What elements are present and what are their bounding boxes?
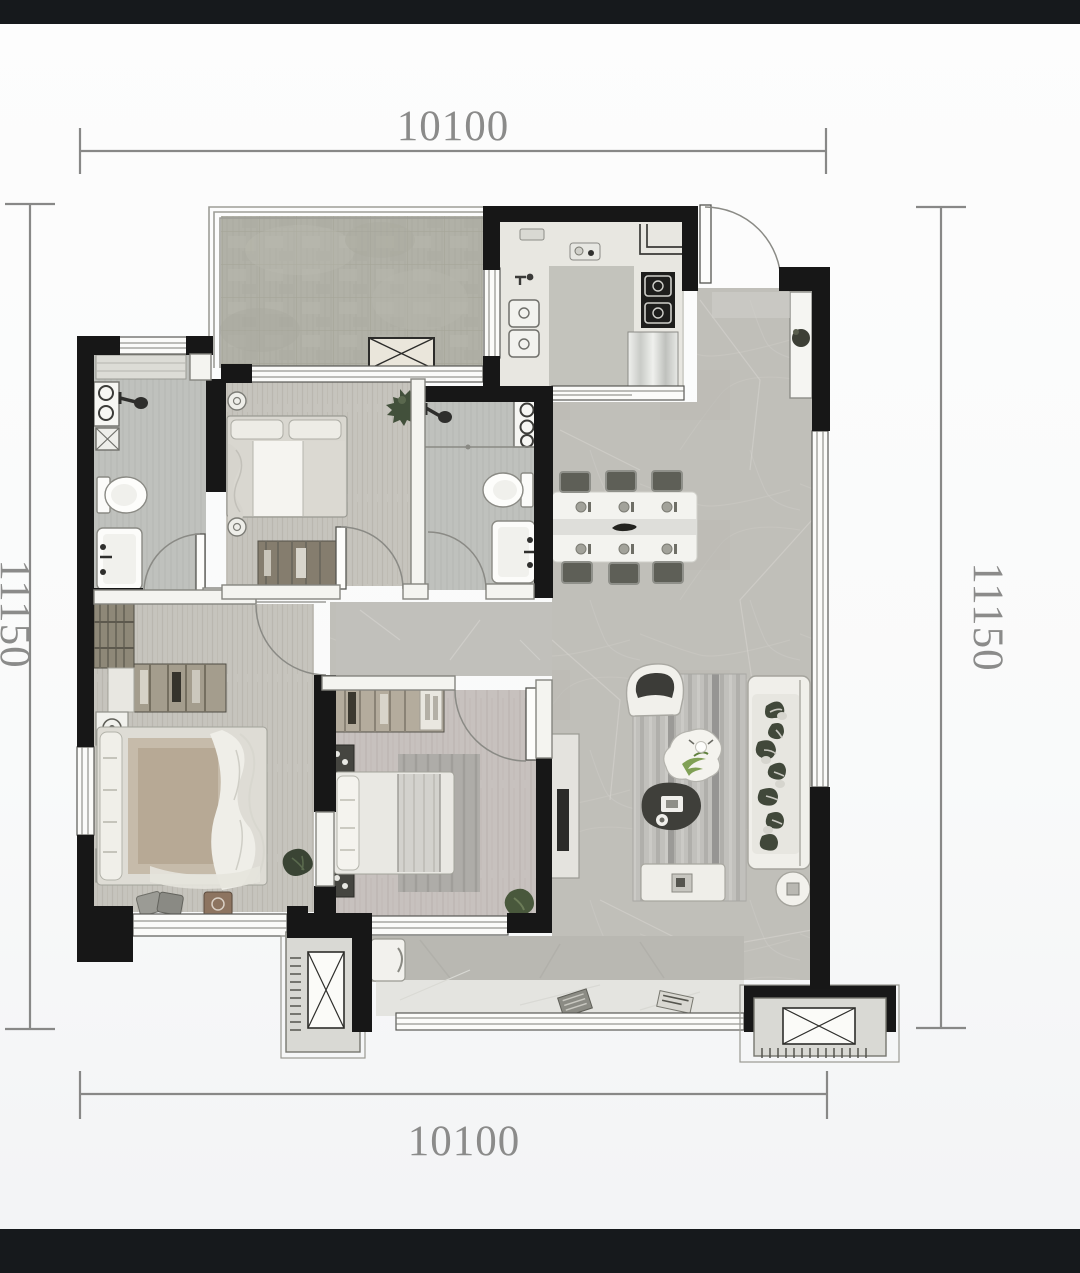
svg-text:10100: 10100	[397, 103, 510, 150]
svg-text:11150: 11150	[964, 562, 1011, 671]
svg-text:11150: 11150	[0, 559, 38, 668]
svg-text:10100: 10100	[408, 1118, 521, 1165]
